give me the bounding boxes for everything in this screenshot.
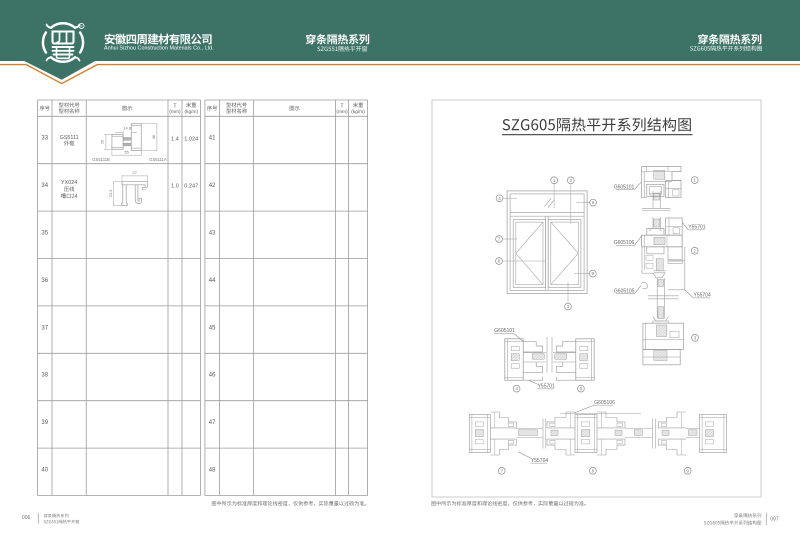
svg-text:YX024: YX024 <box>61 180 77 186</box>
svg-text:3: 3 <box>694 335 697 340</box>
svg-text:44: 44 <box>209 278 216 284</box>
svg-text:35: 35 <box>41 231 48 237</box>
svg-text:1.024: 1.024 <box>184 136 198 142</box>
svg-text:GS5111: GS5111 <box>60 135 79 141</box>
svg-text:4: 4 <box>515 386 518 391</box>
svg-text:23.3: 23.3 <box>108 189 113 198</box>
svg-text:2: 2 <box>693 248 696 253</box>
svg-text:(mm): (mm) <box>336 109 348 115</box>
svg-text:Anhui Sizhou Construction Mate: Anhui Sizhou Construction Materials Co.,… <box>104 46 214 52</box>
svg-text:1: 1 <box>553 178 556 183</box>
svg-text:42: 42 <box>209 183 216 189</box>
svg-text:4: 4 <box>498 196 501 201</box>
svg-text:0.247: 0.247 <box>184 184 198 190</box>
svg-text:43: 43 <box>209 231 216 237</box>
svg-text:48: 48 <box>209 468 216 474</box>
svg-text:14.8: 14.8 <box>123 125 132 130</box>
svg-text:48: 48 <box>151 134 156 139</box>
svg-text:47: 47 <box>209 420 216 426</box>
svg-text:34: 34 <box>41 183 48 189</box>
svg-text:GS5111A: GS5111A <box>149 157 167 162</box>
svg-text:55: 55 <box>124 150 129 155</box>
svg-text:9: 9 <box>592 271 595 276</box>
svg-text:1.4: 1.4 <box>171 136 179 142</box>
svg-text:(kg/m): (kg/m) <box>184 109 198 115</box>
svg-text:6: 6 <box>592 200 595 205</box>
svg-text:3: 3 <box>567 304 570 309</box>
svg-text:GS5111B: GS5111B <box>92 157 110 162</box>
svg-text:006: 006 <box>22 515 31 521</box>
svg-text:40: 40 <box>41 468 48 474</box>
svg-text:27: 27 <box>132 170 137 175</box>
svg-text:6: 6 <box>580 386 583 391</box>
svg-text:2: 2 <box>570 178 573 183</box>
svg-text:007: 007 <box>770 516 779 522</box>
svg-text:39: 39 <box>41 420 48 426</box>
svg-text:33: 33 <box>41 136 48 142</box>
svg-text:(kg/m): (kg/m) <box>351 109 365 115</box>
svg-text:8: 8 <box>592 468 595 473</box>
svg-text:1: 1 <box>693 178 696 183</box>
svg-text:45: 45 <box>209 325 216 331</box>
svg-text:T: T <box>340 104 344 110</box>
svg-text:41: 41 <box>209 136 216 142</box>
svg-text:38: 38 <box>41 373 48 379</box>
svg-text:26: 26 <box>100 139 105 144</box>
svg-text:7: 7 <box>498 237 501 242</box>
svg-text:1.0: 1.0 <box>171 184 179 190</box>
svg-text:9: 9 <box>686 468 689 473</box>
svg-text:36: 36 <box>41 278 48 284</box>
svg-text:46: 46 <box>209 373 216 379</box>
svg-text:(mm): (mm) <box>169 109 181 115</box>
svg-text:37: 37 <box>41 325 48 331</box>
svg-text:T: T <box>173 104 177 110</box>
svg-text:8: 8 <box>498 259 501 264</box>
svg-text:7: 7 <box>500 468 503 473</box>
